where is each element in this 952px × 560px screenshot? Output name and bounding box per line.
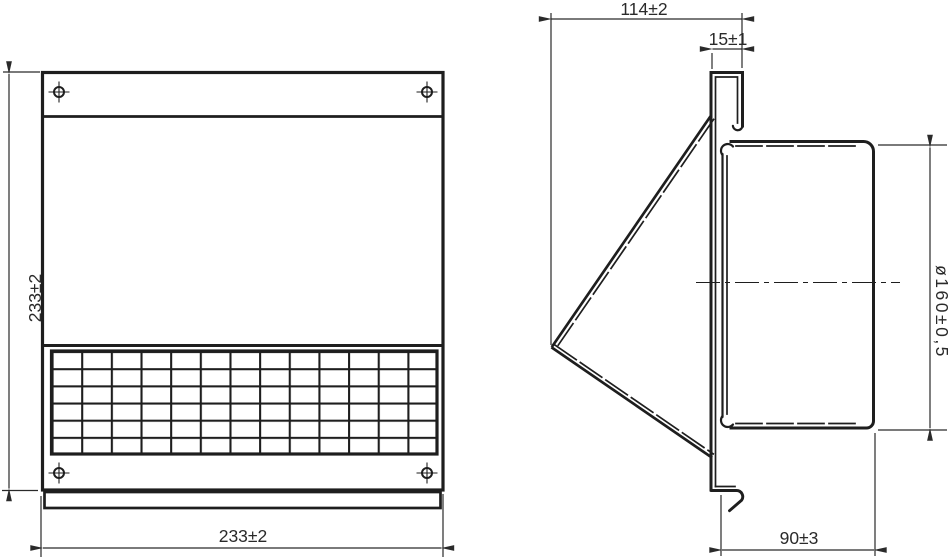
screw-hole-icon: [49, 463, 70, 484]
front-width-label: 233±2: [219, 526, 268, 546]
screw-hole-icon: [417, 463, 438, 484]
dimension-duct-length: 90±3: [721, 433, 875, 556]
front-height-label: 233±2: [25, 274, 45, 323]
front-view: 233±2 233±2: [2, 72, 443, 557]
hood-cowl-section: [553, 117, 714, 457]
duct-diameter-label: ø160±0,5: [932, 265, 952, 359]
drawing-canvas: 233±2 233±2: [0, 0, 952, 560]
technical-drawing: 233±2 233±2: [0, 0, 952, 560]
side-view: 114±2 15±1 ø160±0,5 90±3: [551, 0, 952, 556]
bottom-fold-hook: [711, 487, 743, 511]
grille: [52, 351, 438, 454]
top-flange-label: 15±1: [709, 29, 748, 49]
duct-collar-section: [696, 141, 900, 428]
duct-length-label: 90±3: [780, 528, 819, 548]
screw-hole-icon: [417, 82, 438, 103]
depth-label: 114±2: [620, 0, 667, 19]
dimension-front-height: 233±2: [2, 72, 45, 491]
dimension-duct-diameter: ø160±0,5: [878, 145, 952, 430]
dimension-front-width: 233±2: [41, 494, 443, 557]
screw-hole-icon: [49, 82, 70, 103]
bottom-flange: [45, 492, 441, 508]
dimension-depth: 114±2: [551, 0, 742, 345]
